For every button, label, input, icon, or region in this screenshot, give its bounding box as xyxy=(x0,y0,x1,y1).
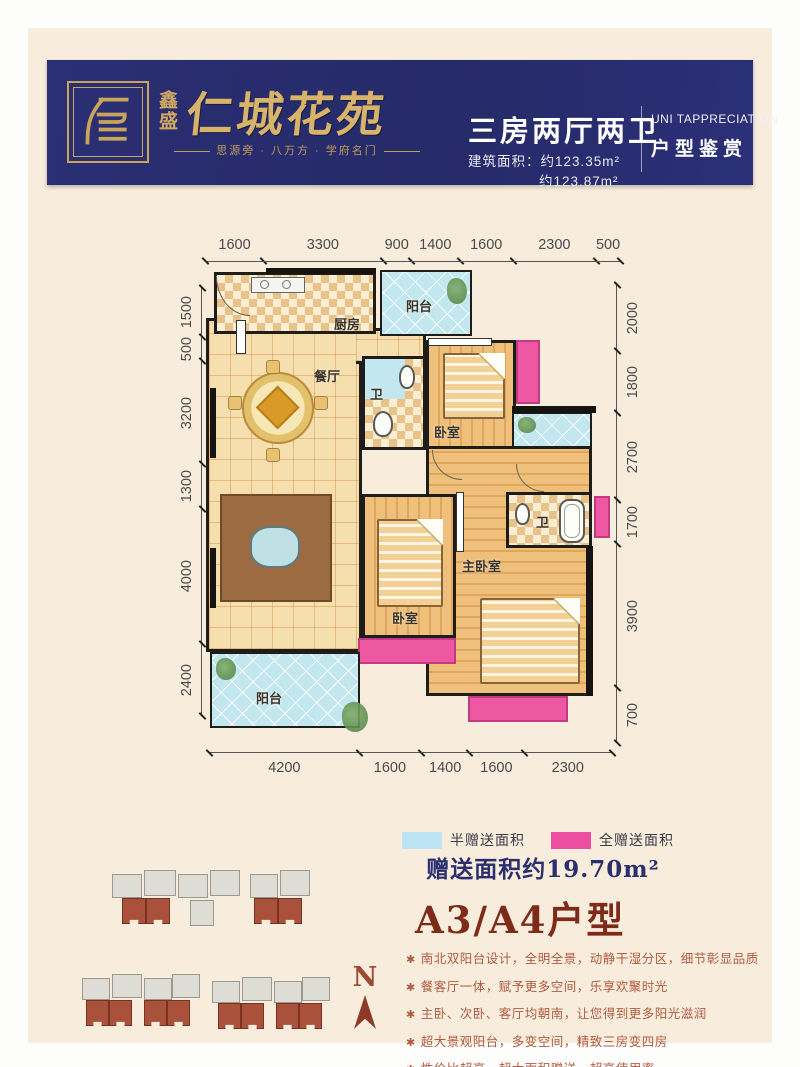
dimensions-top: 1600 3300 900 1400 1600 2300 500 xyxy=(206,232,614,262)
site-plan-cluster xyxy=(212,977,332,1035)
dimensions-left: 1500 500 3200 1300 4000 2400 xyxy=(172,288,202,716)
site-plan-building xyxy=(212,981,240,1003)
north-label: N xyxy=(348,962,382,993)
feature-item: ✱主卧、次卧、客厅均朝南，让您得到更多阳光滋润 xyxy=(406,1003,792,1022)
window-icon xyxy=(236,320,246,354)
toilet-icon xyxy=(399,365,415,389)
wall-segment xyxy=(586,546,593,696)
room-balcony-bottom xyxy=(210,652,360,728)
site-plan-building-highlight xyxy=(146,898,170,924)
wall-segment xyxy=(512,406,596,413)
chair-icon xyxy=(314,396,328,410)
chair-icon xyxy=(266,360,280,374)
plant-icon xyxy=(342,702,368,732)
site-plan-cluster xyxy=(82,974,202,1032)
plant-icon xyxy=(216,658,236,680)
brand-logo xyxy=(67,81,149,163)
header-english-title: UNI TAPPRECIATION xyxy=(651,112,778,126)
feature-text: 性价比超高，超大面积赠送，超高使用率 xyxy=(421,1062,655,1067)
brand-tagline: 思源旁 · 八万方 · 学府名门 xyxy=(147,142,447,158)
feature-text: 南北双阳台设计，全明全景，动静干湿分区，细节彰显品质 xyxy=(421,952,759,966)
bathtub-icon xyxy=(559,499,585,543)
dim-label: 1800 xyxy=(625,366,641,398)
site-plan-building xyxy=(112,874,142,898)
toilet-icon xyxy=(515,503,530,525)
bed-icon xyxy=(480,598,580,684)
site-plan-building xyxy=(178,874,208,898)
dim-label: 2700 xyxy=(625,441,641,473)
site-plan-building xyxy=(144,870,176,896)
gift-zone-full xyxy=(468,696,568,722)
site-plan-building-highlight xyxy=(218,1003,241,1029)
window-icon xyxy=(456,492,464,552)
feature-list: ✱南北双阳台设计，全明全景，动静干湿分区，细节彰显品质 ✱餐客厅一体，赋予更多空… xyxy=(406,948,792,1067)
legend-half-swatch xyxy=(402,832,442,849)
bed-icon xyxy=(377,519,443,607)
dim-label: 500 xyxy=(596,232,620,262)
legend-full-label: 全赠送面积 xyxy=(599,830,674,850)
header-subtitle: 户型鉴赏 xyxy=(651,134,747,161)
dim-label: 1400 xyxy=(411,232,460,262)
dim-label: 1300 xyxy=(179,470,195,502)
flyer-canvas: 鑫盛 仁城花苑 思源旁 · 八万方 · 学府名门 三房两厅两卫 建筑面积：约12… xyxy=(0,0,800,1067)
site-plan-cluster xyxy=(112,870,262,928)
floorplan-body: 厨房 阳台 餐厅 卫 xyxy=(206,268,614,748)
dim-label: 1600 xyxy=(359,752,421,784)
feature-item: ✱超大景观阳台，多变空间，精致三房变四房 xyxy=(406,1031,792,1050)
site-plan-building xyxy=(280,870,310,896)
dim-label: 1700 xyxy=(625,506,641,538)
plant-icon xyxy=(518,417,536,433)
site-plan-building-highlight xyxy=(109,1000,132,1026)
bullet-icon: ✱ xyxy=(406,982,416,994)
dim-label: 3300 xyxy=(263,232,383,262)
site-plan-building-highlight xyxy=(122,898,146,924)
legend-half-label: 半赠送面积 xyxy=(450,830,525,850)
site-plan-building-highlight xyxy=(254,898,278,924)
bullet-icon: ✱ xyxy=(406,954,416,966)
gift-legend: 半赠送面积 全赠送面积 xyxy=(402,830,674,850)
wall-segment xyxy=(210,388,216,458)
room-label-kitchen: 厨房 xyxy=(334,314,360,333)
room-label-bath2: 卫 xyxy=(536,512,549,531)
gift-area-text: 赠送面积约19.70m² xyxy=(398,850,688,884)
dim-label: 700 xyxy=(625,703,641,727)
dim-label: 2400 xyxy=(179,664,195,696)
feature-text: 超大景观阳台，多变空间，精致三房变四房 xyxy=(421,1035,668,1049)
dim-label: 900 xyxy=(383,232,411,262)
feature-item: ✱南北双阳台设计，全明全景，动静干湿分区，细节彰显品质 xyxy=(406,948,792,967)
site-plan-building xyxy=(274,981,302,1003)
site-plan-building-highlight xyxy=(144,1000,167,1026)
site-plan-cluster xyxy=(250,870,320,928)
site-plan-building xyxy=(242,977,272,1001)
unit-type-title: 三房两厅两卫 xyxy=(468,108,660,150)
site-plan-building-highlight xyxy=(278,898,302,924)
header-divider xyxy=(641,106,642,172)
built-area-line2: 约123.87m² xyxy=(539,170,619,190)
dim-label: 3200 xyxy=(179,397,195,429)
dimensions-bottom: 4200 1600 1400 1600 2300 xyxy=(210,752,612,784)
site-plan-building-highlight xyxy=(167,1000,190,1026)
dim-label: 1600 xyxy=(469,752,523,784)
dim-label: 1400 xyxy=(421,752,469,784)
site-plan-building xyxy=(210,870,240,896)
logo-glyph-icon xyxy=(80,94,136,150)
site-plan-building-highlight xyxy=(241,1003,264,1029)
room-label-bedroom-top: 卧室 xyxy=(434,422,460,441)
plant-icon xyxy=(447,278,467,304)
floorplan-section: 1600 3300 900 1400 1600 2300 500 4200 16… xyxy=(160,228,672,800)
legend-full-swatch xyxy=(551,832,591,849)
dim-label: 4000 xyxy=(179,560,195,592)
brand-name: 仁城花苑 xyxy=(183,76,460,145)
stove-icon xyxy=(251,277,305,293)
sink-icon xyxy=(373,411,393,437)
north-arrow-icon xyxy=(354,995,376,1029)
bed-icon xyxy=(443,353,505,419)
gift-zone-full xyxy=(358,638,456,664)
dim-label: 3900 xyxy=(625,600,641,632)
site-plan-building-highlight xyxy=(86,1000,109,1026)
dim-label: 500 xyxy=(179,337,195,361)
site-plan-building xyxy=(112,974,142,998)
bullet-icon: ✱ xyxy=(406,1009,416,1021)
room-label-dining: 餐厅 xyxy=(314,366,340,385)
wall-segment xyxy=(266,268,376,274)
chair-icon xyxy=(266,448,280,462)
room-label-balcony-bottom: 阳台 xyxy=(256,688,282,707)
unit-model-title: A3/A4户型 xyxy=(415,890,625,944)
feature-text: 餐客厅一体，赋予更多空间，乐享欢聚时光 xyxy=(421,980,668,994)
dim-label: 1600 xyxy=(460,232,513,262)
room-label-master: 主卧室 xyxy=(462,556,501,575)
logo-frame xyxy=(73,87,143,157)
gift-zone-full xyxy=(594,496,610,538)
coffee-table-icon xyxy=(250,526,300,568)
dim-label: 2300 xyxy=(513,232,596,262)
header-banner: 鑫盛 仁城花苑 思源旁 · 八万方 · 学府名门 三房两厅两卫 建筑面积：约12… xyxy=(47,60,753,185)
dimensions-right: 2000 1800 2700 1700 3900 700 xyxy=(616,285,648,743)
chair-icon xyxy=(228,396,242,410)
dining-table-icon xyxy=(242,372,314,444)
site-plan-building-highlight xyxy=(276,1003,299,1029)
site-plan-building xyxy=(190,900,214,926)
room-bath1 xyxy=(362,356,426,450)
site-plan-building xyxy=(144,978,172,1000)
site-plan-building xyxy=(302,977,330,1001)
north-compass: N xyxy=(348,962,382,1029)
sofa-set-icon xyxy=(220,494,332,602)
brand-small-name: 鑫盛 xyxy=(157,90,179,132)
site-plan-building xyxy=(82,978,110,1000)
site-plan-building xyxy=(250,874,278,898)
room-label-bath1: 卫 xyxy=(370,384,383,403)
dim-label: 1500 xyxy=(179,296,195,328)
room-label-bedroom-mid: 卧室 xyxy=(392,608,418,627)
room-label-balcony-top: 阳台 xyxy=(406,296,432,315)
site-plan-building xyxy=(172,974,200,998)
gift-zone-full xyxy=(516,340,540,404)
feature-text: 主卧、次卧、客厅均朝南，让您得到更多阳光滋润 xyxy=(421,1007,707,1021)
dim-label: 1600 xyxy=(206,232,263,262)
feature-item: ✱性价比超高，超大面积赠送，超高使用率 xyxy=(406,1058,792,1067)
dim-label: 2300 xyxy=(524,752,612,784)
dim-label: 4200 xyxy=(210,752,359,784)
site-plan-building-highlight xyxy=(299,1003,322,1029)
built-area-line1: 建筑面积：约123.35m² xyxy=(468,150,620,170)
feature-item: ✱餐客厅一体，赋予更多空间，乐享欢聚时光 xyxy=(406,976,792,995)
bullet-icon: ✱ xyxy=(406,1037,416,1049)
window-icon xyxy=(428,338,492,346)
dim-label: 2000 xyxy=(625,302,641,334)
wall-segment xyxy=(210,548,216,608)
